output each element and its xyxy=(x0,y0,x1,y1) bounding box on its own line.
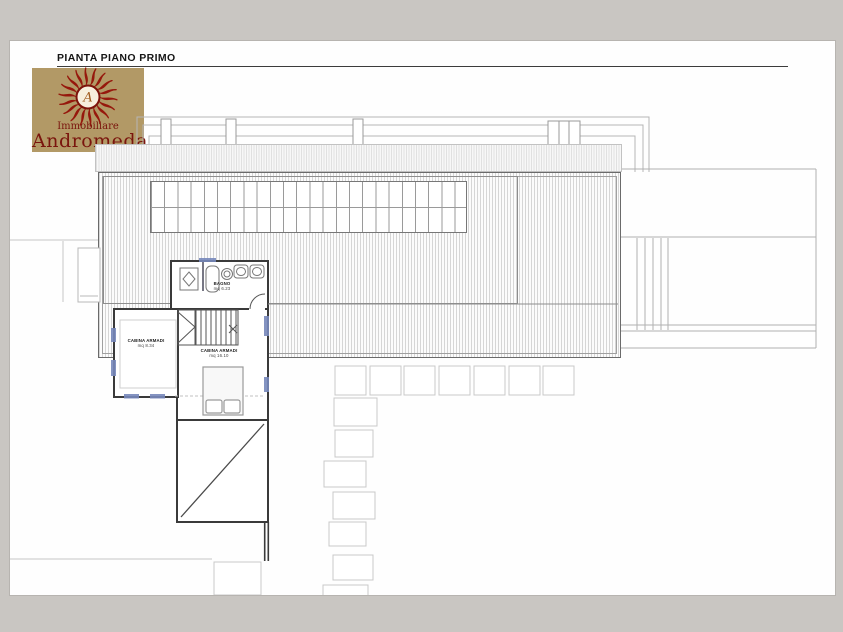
wall-stub xyxy=(265,522,269,561)
annex-roof-lines xyxy=(621,169,816,348)
paving-stone xyxy=(439,366,470,395)
paving-stone xyxy=(324,461,366,487)
paving-stone xyxy=(333,555,373,580)
sun-icon: A xyxy=(57,66,119,128)
room-closet-left xyxy=(113,308,179,398)
paving-stone xyxy=(543,366,574,395)
room-area: mq 8.34 xyxy=(117,344,175,349)
paving-stone xyxy=(474,366,505,395)
paving-stone xyxy=(214,562,261,595)
chimney xyxy=(161,119,171,147)
label-bathroom: BAGNO mq 6.23 xyxy=(193,282,251,292)
paving-stone xyxy=(323,585,368,595)
drawing-sheet: PIANTA PIANO PRIMO xyxy=(10,41,835,595)
title-divider xyxy=(57,66,788,67)
room-void xyxy=(176,419,269,523)
paving-stone xyxy=(335,366,366,395)
agency-logo: A Immobiliare Andromeda xyxy=(32,68,144,152)
room-area: mq 6.23 xyxy=(193,287,251,292)
logo-monogram: A xyxy=(82,91,92,106)
label-closet-left: CABINA ARMADI mq 8.34 xyxy=(117,339,175,349)
paving-stone xyxy=(370,366,401,395)
floor-plan: PIANTA PIANO PRIMO xyxy=(10,41,835,595)
paving-stone xyxy=(509,366,540,395)
page-title: PIANTA PIANO PRIMO xyxy=(57,52,176,64)
room-area: mq 16.10 xyxy=(190,354,248,359)
paving-stone xyxy=(404,366,435,395)
upper-roof-hatch xyxy=(95,144,622,172)
skylight-grid xyxy=(150,181,467,233)
screenshot-background: PIANTA PIANO PRIMO xyxy=(0,0,843,632)
paving-stone xyxy=(334,398,377,426)
paving-stone xyxy=(329,522,366,546)
room-closet-right xyxy=(176,308,269,421)
paving-stone xyxy=(335,430,373,457)
balcony xyxy=(78,248,100,302)
label-closet-right: CABINA ARMADI mq 16.10 xyxy=(190,349,248,359)
paving-stone xyxy=(333,492,375,519)
chimney xyxy=(353,119,363,147)
chimney xyxy=(226,119,236,147)
